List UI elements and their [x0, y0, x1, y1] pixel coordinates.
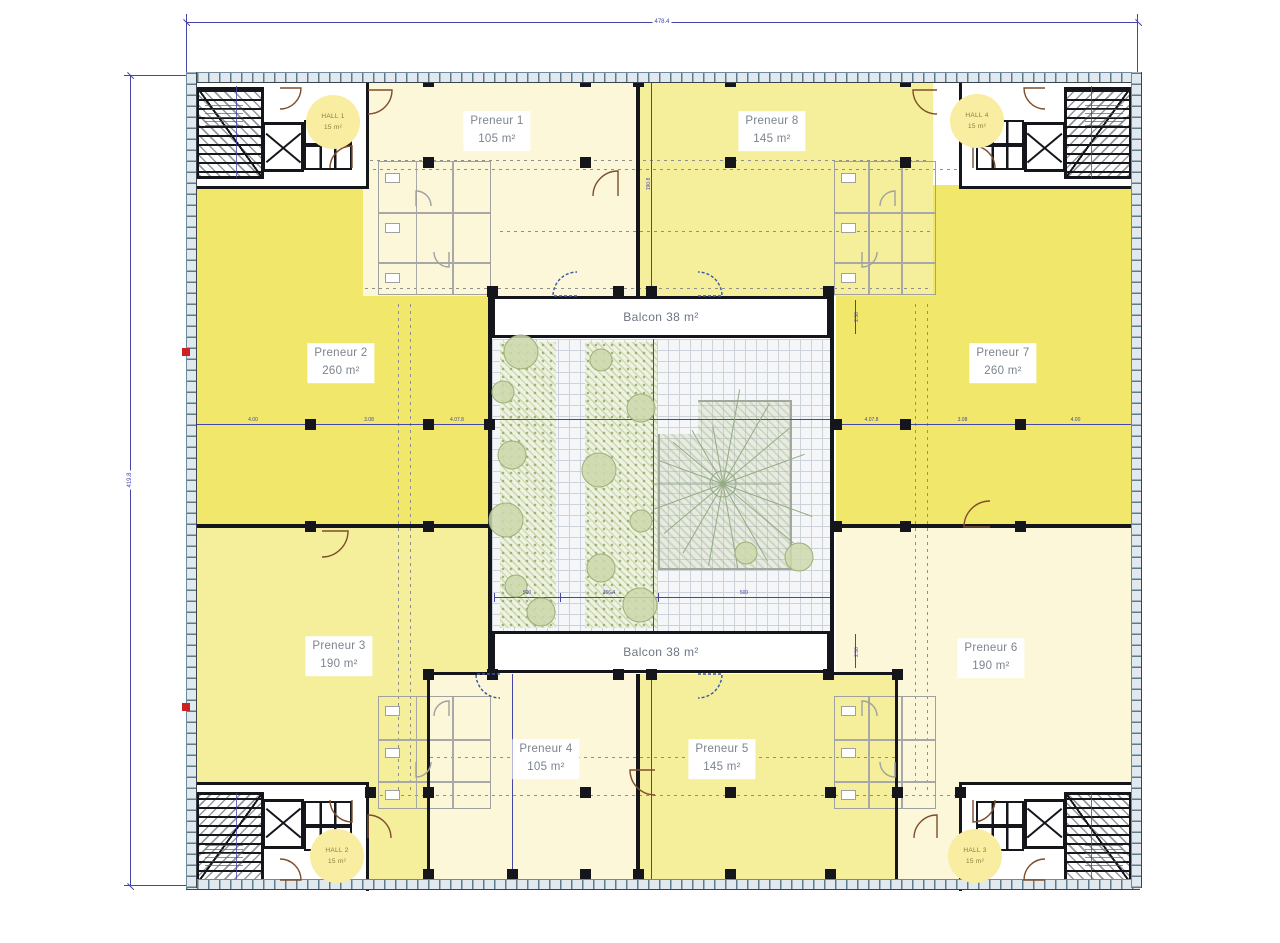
dim-chain-label: 500	[740, 590, 748, 596]
wall	[836, 524, 1131, 528]
unit-name: Preneur 6	[964, 640, 1017, 658]
core-axis-line	[236, 86, 237, 178]
axis-line	[653, 339, 654, 631]
wc-fixture	[385, 748, 400, 758]
planting-strip-center	[585, 342, 657, 628]
column	[1015, 419, 1026, 430]
column	[507, 869, 518, 880]
column	[613, 286, 624, 297]
sanitary-wall	[835, 262, 935, 264]
dim-overall-width: 478.4	[652, 19, 671, 25]
unit-name: Preneur 7	[976, 345, 1029, 363]
hall-area: 15 m²	[966, 856, 984, 867]
unit-area: 190 m²	[964, 658, 1017, 676]
dim-balcony-depth-top: 2.50	[854, 312, 860, 322]
unit-label-preneur-5: Preneur 5 145 m²	[688, 739, 755, 779]
column	[900, 419, 911, 430]
staircase	[196, 87, 264, 179]
core-axis-line	[1091, 793, 1092, 885]
red-marker	[182, 703, 190, 711]
column	[892, 787, 903, 798]
unit-area: 190 m²	[312, 656, 365, 674]
column	[725, 157, 736, 168]
wall	[488, 296, 492, 674]
wall	[636, 81, 640, 296]
column	[423, 157, 434, 168]
sanitary-wall	[379, 262, 490, 264]
dim-chain-label: 4.00	[248, 417, 258, 423]
dimension-ext	[124, 75, 186, 76]
wc-fixture	[841, 790, 856, 800]
dim-overall-height: 419.8	[127, 470, 133, 489]
hall-badge-top-right: HALL 4 15 m²	[950, 94, 1004, 148]
sanitary-wall	[835, 212, 935, 214]
curtain-wall-right	[1131, 72, 1142, 888]
column	[423, 869, 434, 880]
column	[646, 286, 657, 297]
sanitary-wall	[835, 739, 935, 741]
dim-chain-label: 3.08	[958, 417, 968, 423]
sanitary-block-top-left	[378, 161, 491, 295]
column	[900, 157, 911, 168]
column	[423, 419, 434, 430]
unit-area: 260 m²	[976, 363, 1029, 381]
dim-chain-label: 366.4	[603, 590, 616, 596]
core-axis-line	[1091, 86, 1092, 178]
balcony-bottom-label: Balcon 38 m²	[623, 645, 699, 659]
axis-line	[651, 674, 652, 886]
dimension-chain-tick	[494, 593, 495, 602]
column	[646, 669, 657, 680]
hall-name: HALL 4	[965, 110, 988, 121]
column	[823, 286, 834, 297]
planting-strip-left	[500, 342, 556, 628]
hall-area: 15 m²	[968, 121, 986, 132]
column	[831, 419, 842, 430]
red-marker	[182, 348, 190, 356]
unit-label-preneur-3: Preneur 3 190 m²	[305, 636, 372, 676]
hall-name: HALL 1	[321, 111, 344, 122]
sanitary-block-top-right	[834, 161, 936, 295]
wall	[895, 674, 898, 879]
column	[1015, 521, 1026, 532]
dimension-chain-tick	[560, 593, 561, 602]
dimension-chain	[838, 424, 1131, 425]
sanitary-wall	[416, 162, 418, 294]
wall	[830, 672, 897, 675]
dim-chain-label: 3.08	[364, 417, 374, 423]
hall-area: 15 m²	[328, 856, 346, 867]
sanitary-wall	[379, 781, 490, 783]
sanitary-wall	[416, 697, 418, 808]
column	[487, 669, 498, 680]
unit-area: 105 m²	[519, 759, 572, 777]
wc-fixture	[841, 173, 856, 183]
column	[825, 869, 836, 880]
wc-fixture	[841, 223, 856, 233]
column	[725, 787, 736, 798]
dim-chain-label: 4.00	[1071, 417, 1081, 423]
hall-name: HALL 3	[963, 845, 986, 856]
unit-label-preneur-7: Preneur 7 260 m²	[969, 343, 1036, 383]
column	[825, 787, 836, 798]
wall	[830, 296, 834, 674]
dimension-ext	[124, 885, 186, 886]
hall-area: 15 m²	[324, 122, 342, 133]
unit-name: Preneur 5	[695, 741, 748, 759]
axis-line	[492, 419, 831, 420]
dim-balcony-depth-bottom: 2.50	[854, 647, 860, 657]
hall-badge-bottom-left: HALL 2 15 m²	[310, 829, 364, 883]
staircase	[1064, 792, 1132, 884]
dim-axis-label: 190.8	[646, 178, 652, 191]
unit-label-preneur-4: Preneur 4 105 m²	[512, 739, 579, 779]
column	[613, 669, 624, 680]
column	[955, 787, 966, 798]
wc-fixture	[385, 173, 400, 183]
column	[305, 521, 316, 532]
sanitary-wall	[901, 162, 903, 294]
unit-area: 105 m²	[470, 131, 523, 149]
column	[305, 419, 316, 430]
dimension-chain	[196, 424, 486, 425]
elevator	[1024, 799, 1066, 849]
sanitary-wall	[868, 162, 870, 294]
unit-name: Preneur 4	[519, 741, 572, 759]
dimension-chain	[494, 597, 830, 598]
wc-fixture	[841, 706, 856, 716]
unit-area: 260 m²	[314, 363, 367, 381]
dimension-chain-tick	[658, 593, 659, 602]
sanitary-wall	[868, 697, 870, 808]
hall-badge-bottom-right: HALL 3 15 m²	[948, 829, 1002, 883]
wall	[636, 674, 640, 886]
elevator	[262, 799, 304, 849]
curtain-wall-left	[186, 72, 197, 888]
column	[423, 669, 434, 680]
unit-name: Preneur 1	[470, 113, 523, 131]
axis-line	[512, 674, 513, 886]
sanitary-wall	[452, 697, 454, 808]
staircase	[1064, 87, 1132, 179]
column	[423, 521, 434, 532]
core-axis-line	[236, 793, 237, 885]
column	[900, 521, 911, 532]
wc-fixture	[385, 790, 400, 800]
dashed-partition-line	[430, 757, 895, 758]
floor-plan-sheet: Preneur 1 105 m² Preneur 8 145 m² Preneu…	[0, 0, 1280, 943]
column	[484, 419, 495, 430]
dim-chain-label: 500	[523, 590, 531, 596]
curtain-wall-top	[186, 72, 1140, 83]
wall	[195, 524, 489, 528]
column	[580, 869, 591, 880]
elevator	[262, 122, 304, 172]
unit-label-preneur-6: Preneur 6 190 m²	[957, 638, 1024, 678]
balcony-top-label: Balcon 38 m²	[623, 310, 699, 324]
column	[580, 787, 591, 798]
wall	[428, 672, 492, 675]
unit-area: 145 m²	[695, 759, 748, 777]
sanitary-wall	[379, 212, 490, 214]
wc-fixture	[385, 223, 400, 233]
dim-chain-label: 4.07.8	[865, 417, 879, 423]
column	[365, 787, 376, 798]
wc-fixture	[841, 748, 856, 758]
unit-label-preneur-8: Preneur 8 145 m²	[738, 111, 805, 151]
dim-chain-label: 4.07.8	[450, 417, 464, 423]
elevator	[1024, 122, 1066, 172]
hall-badge-top-left: HALL 1 15 m²	[306, 95, 360, 149]
unit-label-preneur-2: Preneur 2 260 m²	[307, 343, 374, 383]
column	[831, 521, 842, 532]
stair-annotation	[205, 102, 243, 126]
unit-name: Preneur 3	[312, 638, 365, 656]
wc-fixture	[385, 706, 400, 716]
column	[725, 869, 736, 880]
unit-name: Preneur 8	[745, 113, 798, 131]
column	[580, 157, 591, 168]
wall	[427, 674, 430, 879]
staircase	[196, 792, 264, 884]
stair-annotation	[205, 845, 243, 869]
column	[633, 869, 644, 880]
sanitary-wall	[379, 739, 490, 741]
sanitary-wall	[835, 781, 935, 783]
sanitary-block-bottom-right	[834, 696, 936, 809]
wc-fixture	[841, 273, 856, 283]
column	[487, 286, 498, 297]
sanitary-block-bottom-left	[378, 696, 491, 809]
unit-label-preneur-1: Preneur 1 105 m²	[463, 111, 530, 151]
hall-name: HALL 2	[325, 845, 348, 856]
column	[823, 669, 834, 680]
unit-name: Preneur 2	[314, 345, 367, 363]
unit-area: 145 m²	[745, 131, 798, 149]
sanitary-wall	[452, 162, 454, 294]
column	[423, 787, 434, 798]
column	[892, 669, 903, 680]
wc-fixture	[385, 273, 400, 283]
